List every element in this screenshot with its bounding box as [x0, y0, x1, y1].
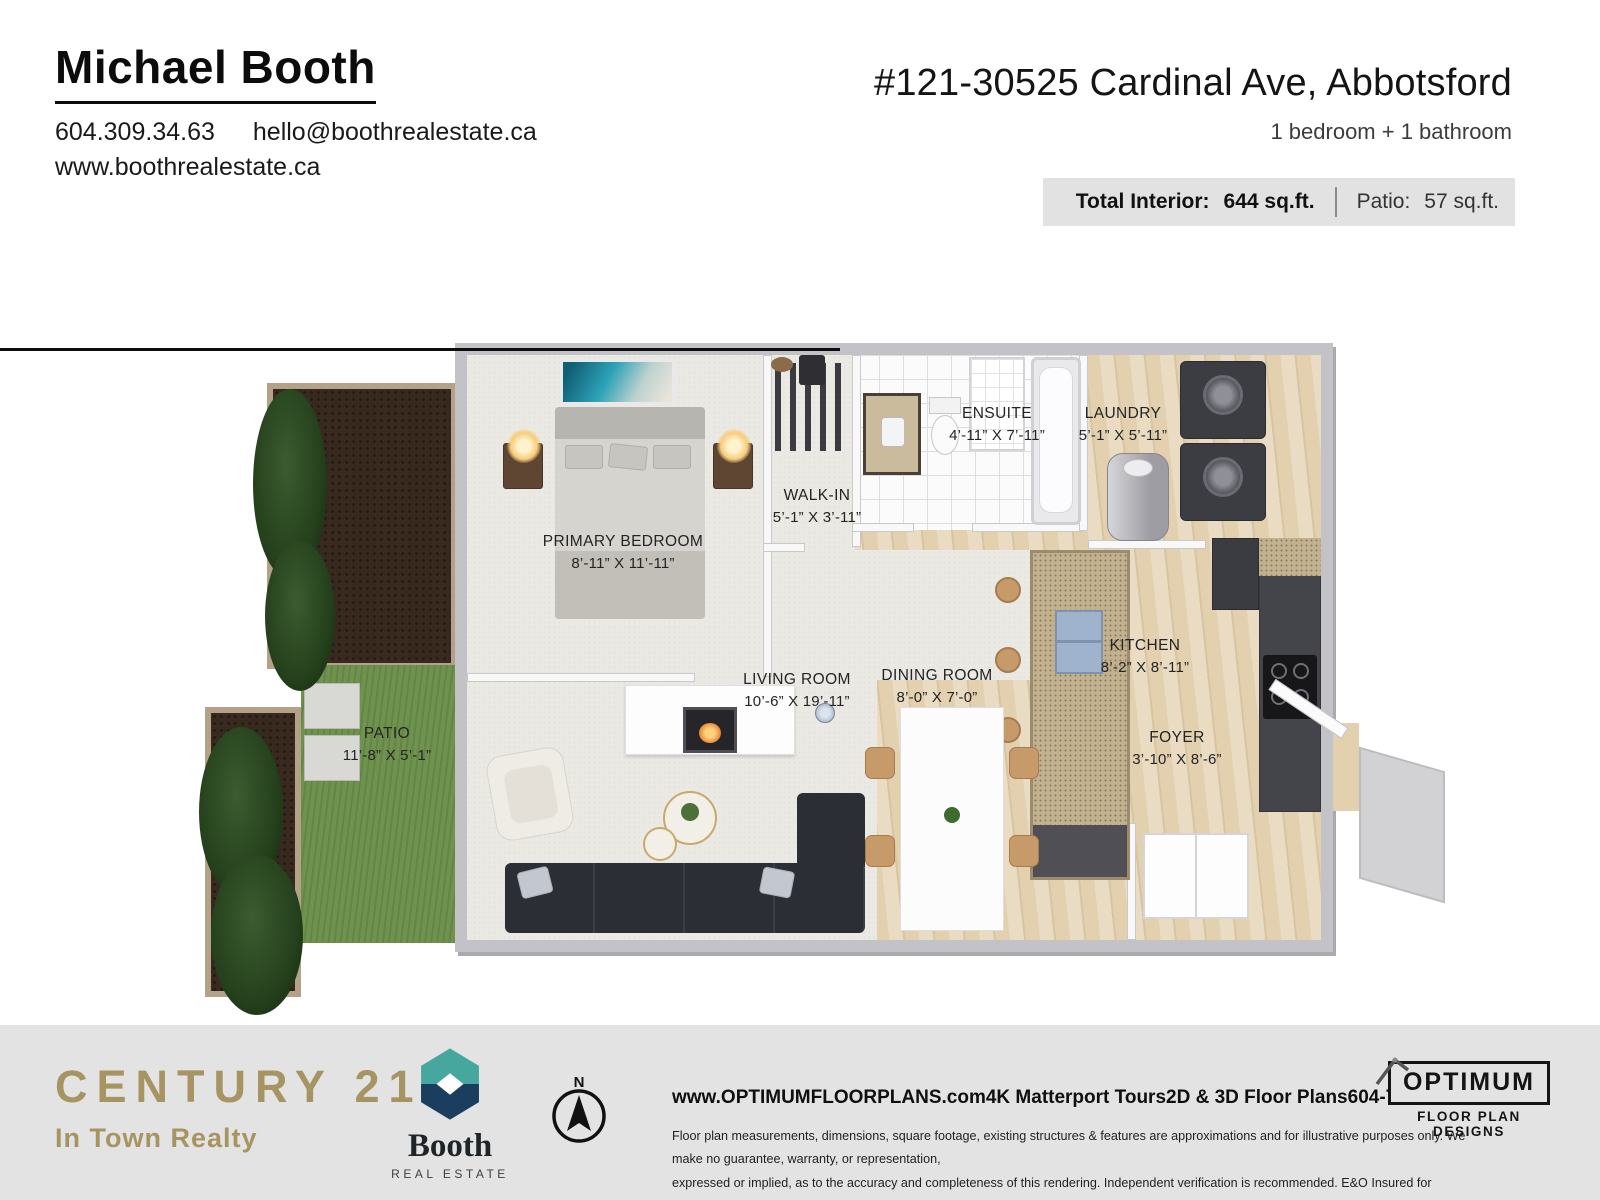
booth-hexagon-icon [416, 1047, 484, 1121]
optimum-website: www.OPTIMUMFLOORPLANS.com [672, 1087, 986, 1109]
bed-pillow [653, 445, 691, 469]
interior-wall [763, 355, 772, 677]
booth-real-estate-logo: Booth REAL ESTATE [390, 1047, 510, 1181]
label-entrance: ENTRANCE [0, 319, 840, 351]
disclaimer: Floor plan measurements, dimensions, squ… [672, 1125, 1472, 1200]
floor-plan-brochure: Michael Booth 604.309.34.63hello@boothre… [0, 0, 1600, 1200]
closet-bag [799, 355, 825, 385]
optimum-floor-plan-designs-logo: OPTIMUM FLOOR PLAN DESIGNS [1388, 1061, 1550, 1139]
stats-divider [1335, 187, 1337, 217]
agent-email: hello@boothrealestate.ca [253, 118, 537, 146]
agent-website: www.boothrealestate.ca [55, 153, 537, 182]
matterport-tours: 4K Matterport Tours [986, 1087, 1166, 1109]
booth-logo-sub: REAL ESTATE [390, 1167, 510, 1181]
evergreen-tree [211, 855, 303, 1015]
agent-contact-line: 604.309.34.63hello@boothrealestate.ca [55, 118, 537, 147]
dryer-door [1203, 457, 1243, 497]
kitchen-cabinet [1212, 538, 1259, 610]
bar-stool [995, 577, 1021, 603]
sofa [505, 863, 865, 933]
agent-name: Michael Booth [55, 40, 376, 104]
label-dining-room: DINING ROOM8’-0” X 7’-0” [881, 664, 992, 710]
address-block: #121-30525 Cardinal Ave, Abbotsford 1 be… [874, 62, 1512, 145]
interior-wall [1088, 540, 1206, 549]
armchair [503, 763, 560, 825]
agent-block: Michael Booth 604.309.34.63hello@boothre… [55, 40, 537, 182]
bed-pillow [565, 445, 603, 469]
interior-wall [763, 543, 805, 552]
entrance-landing [1359, 747, 1445, 904]
label-walk-in: WALK-IN5’-1” X 3’-11” [773, 484, 861, 530]
sofa-chaise [797, 793, 865, 867]
bar-stool [995, 647, 1021, 673]
stove-burner [1271, 663, 1287, 679]
fireplace-flame [699, 723, 721, 743]
optimum-logo-title: OPTIMUM [1403, 1068, 1535, 1096]
label-foyer: FOYER3’-10” X 8’-6” [1132, 726, 1222, 772]
floor-plan: PRIMARY BEDROOM8’-11” X 11’-11” WALK-IN5… [205, 335, 1475, 1000]
dining-chair [865, 835, 895, 867]
disclaimer-line-1: Floor plan measurements, dimensions, squ… [672, 1125, 1472, 1172]
total-interior: Total Interior:644 sq.ft. [1076, 190, 1315, 214]
label-kitchen: KITCHEN8’-2” X 8’-11” [1101, 634, 1189, 680]
table-plant [944, 807, 960, 823]
vanity-sink [881, 417, 905, 447]
kitchen-counter [1259, 538, 1321, 576]
dining-chair [865, 747, 895, 779]
label-living-room: LIVING ROOM10’-6” X 19’-11” [743, 668, 851, 714]
patio-area: Patio:57 sq.ft. [1357, 190, 1499, 214]
washer-door [1203, 375, 1243, 415]
compass-icon: N [546, 1073, 612, 1147]
unit-outline [455, 343, 1333, 952]
label-primary-bedroom: PRIMARY BEDROOM8’-11” X 11’-11” [543, 530, 703, 576]
dining-chair [1009, 835, 1039, 867]
dining-chair [1009, 747, 1039, 779]
footer: CENTURY 21.® In Town Realty Booth REAL E… [0, 1025, 1600, 1200]
water-heater [1123, 459, 1153, 477]
interior-wall [852, 523, 914, 532]
optimum-logo-sub: FLOOR PLAN DESIGNS [1388, 1109, 1550, 1139]
label-laundry: LAUNDRY5’-1” X 5’-11” [1079, 402, 1167, 448]
toss-pillow [759, 866, 796, 899]
disclaimer-line-2: expressed or implied, as to the accuracy… [672, 1172, 1472, 1200]
interior-wall [467, 673, 695, 682]
coffee-table [643, 827, 677, 861]
svg-text:N: N [574, 1074, 585, 1091]
evergreen-tree [265, 541, 335, 691]
bed-pillow [608, 443, 648, 471]
table-lamp [507, 429, 541, 463]
optimum-services-line: www.OPTIMUMFLOORPLANS.com 4K Matterport … [672, 1087, 1462, 1109]
label-patio: PATIO11’-8” X 5’-1” [343, 722, 431, 768]
optimum-roof-icon [1375, 1054, 1409, 1086]
bed-headboard [555, 407, 705, 439]
kitchen-sink [1057, 640, 1101, 643]
kitchen-island [1030, 550, 1130, 880]
area-stats-bar: Total Interior:644 sq.ft. Patio:57 sq.ft… [1043, 178, 1515, 226]
property-address: #121-30525 Cardinal Ave, Abbotsford [874, 62, 1512, 105]
label-ensuite: ENSUITE4’-11” X 7’-11” [949, 402, 1045, 448]
beds-baths: 1 bedroom + 1 bathroom [874, 119, 1512, 145]
floor-plans-service: 2D & 3D Floor Plans [1166, 1087, 1348, 1109]
foyer-closet [1195, 835, 1197, 917]
closet-hat [771, 357, 793, 372]
stove-burner [1293, 663, 1309, 679]
wall-art [560, 359, 675, 405]
table-lamp [717, 429, 751, 463]
table-flowers [681, 803, 699, 821]
booth-logo-name: Booth [390, 1128, 510, 1165]
agent-phone: 604.309.34.63 [55, 118, 215, 146]
